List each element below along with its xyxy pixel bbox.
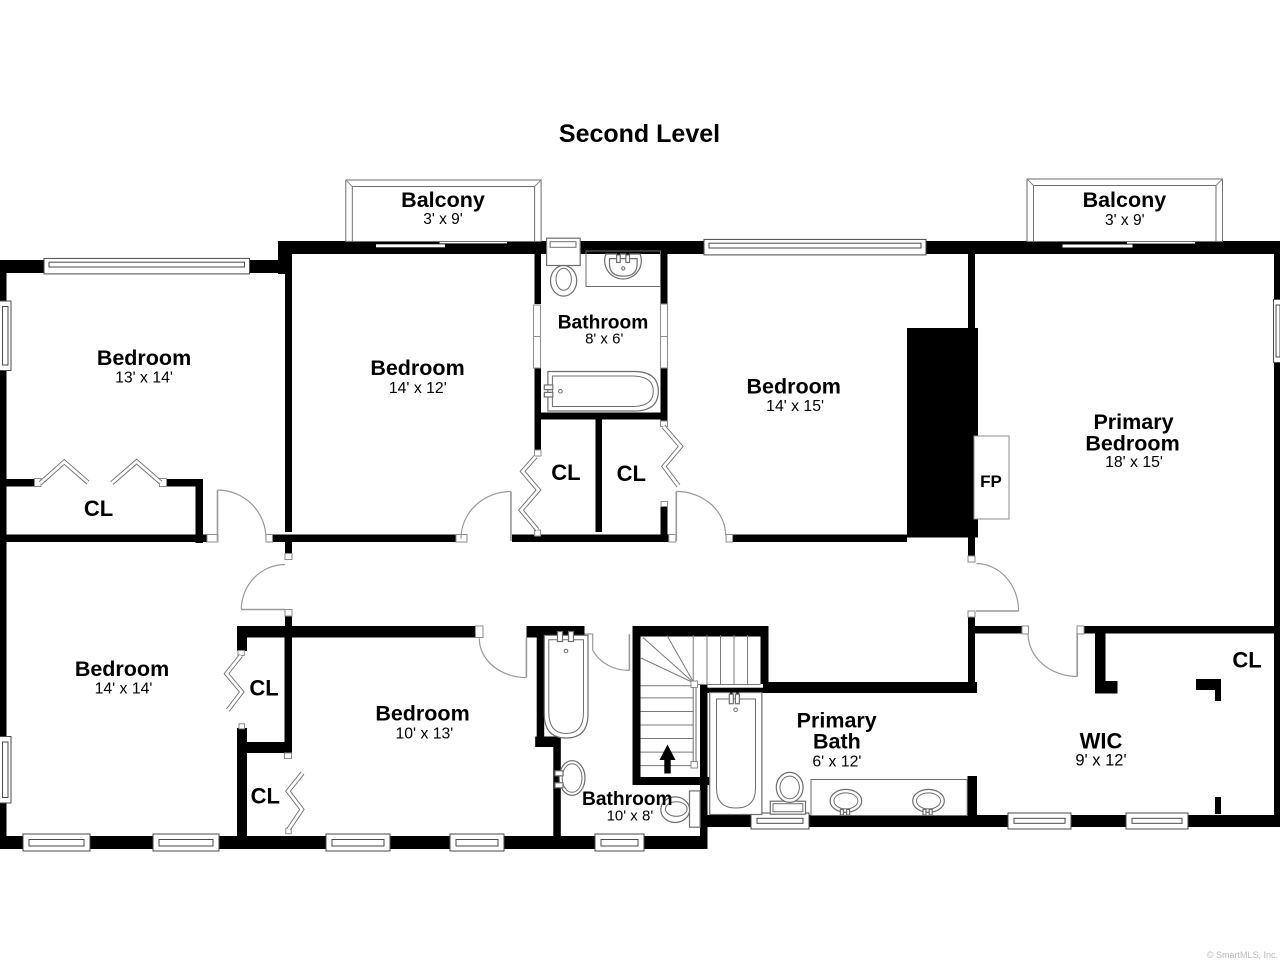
svg-text:CL: CL bbox=[551, 460, 580, 485]
svg-text:10' x 8': 10' x 8' bbox=[607, 808, 654, 825]
svg-text:Bedroom: Bedroom bbox=[375, 701, 469, 725]
svg-text:Bedroom: Bedroom bbox=[97, 346, 191, 370]
svg-text:CL: CL bbox=[1232, 648, 1261, 673]
svg-text:14' x 14': 14' x 14' bbox=[95, 680, 153, 697]
svg-text:8' x 6': 8' x 6' bbox=[585, 330, 623, 347]
svg-text:Bedroom: Bedroom bbox=[370, 356, 464, 380]
svg-text:3' x 9': 3' x 9' bbox=[1105, 212, 1145, 229]
svg-text:14' x 12': 14' x 12' bbox=[389, 380, 447, 397]
svg-text:FP: FP bbox=[980, 472, 1002, 491]
svg-text:WIC: WIC bbox=[1080, 729, 1123, 754]
svg-text:14' x 15': 14' x 15' bbox=[766, 398, 824, 415]
svg-text:Bedroom: Bedroom bbox=[1085, 432, 1179, 456]
svg-text:Primary: Primary bbox=[1093, 410, 1173, 434]
svg-text:18' x 15': 18' x 15' bbox=[1105, 454, 1163, 471]
svg-text:CL: CL bbox=[249, 676, 278, 701]
svg-text:13' x 14': 13' x 14' bbox=[115, 369, 173, 386]
svg-text:Second Level: Second Level bbox=[559, 120, 720, 148]
svg-text:9' x 12': 9' x 12' bbox=[1075, 752, 1126, 770]
svg-text:Balcony: Balcony bbox=[401, 188, 485, 212]
svg-text:CL: CL bbox=[251, 783, 280, 808]
svg-text:10' x 13': 10' x 13' bbox=[395, 725, 453, 742]
svg-text:6' x 12': 6' x 12' bbox=[812, 753, 861, 770]
svg-text:3' x 9': 3' x 9' bbox=[423, 211, 463, 228]
svg-text:© SmartMLS, Inc.: © SmartMLS, Inc. bbox=[1207, 950, 1278, 960]
svg-text:Bath: Bath bbox=[813, 729, 861, 753]
svg-text:Balcony: Balcony bbox=[1083, 188, 1167, 212]
svg-text:Bedroom: Bedroom bbox=[747, 374, 841, 398]
svg-text:CL: CL bbox=[84, 496, 113, 521]
svg-text:Bedroom: Bedroom bbox=[75, 657, 169, 681]
svg-text:CL: CL bbox=[617, 461, 646, 486]
